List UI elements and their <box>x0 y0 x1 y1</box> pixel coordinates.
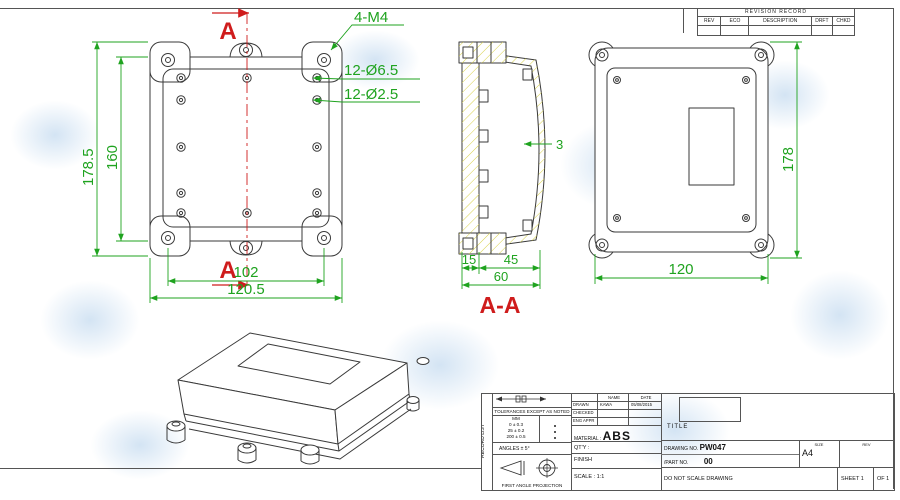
checked-label: CHECKED <box>571 409 598 417</box>
bottom-row: DO NOT SCALE DRAWING SHEET 1 OF 1 <box>661 468 894 490</box>
qty-row: QT'Y : <box>571 442 661 454</box>
section-marker-top: A <box>219 18 236 45</box>
revision-table: REVISION RECORD REV ECO DESCRIPTION DRFT… <box>697 8 855 36</box>
revision-table-empty-row <box>698 26 854 35</box>
col-rev: REV <box>698 17 721 25</box>
material-row: MATERIAL : ABS <box>571 425 661 442</box>
dim-120: 120 <box>668 261 693 278</box>
drawn-name: KAWA <box>598 401 629 409</box>
label-12-d6-5: 12-Ø6.5 <box>344 62 398 79</box>
back-view <box>589 42 774 258</box>
dim-15: 15 <box>462 252 476 267</box>
first-angle-projection-label: FIRST ANGLE PROJECTION <box>493 483 571 488</box>
rev-label: REV <box>839 441 894 448</box>
dim-120-5: 120.5 <box>227 281 265 298</box>
name-header: NAME <box>598 394 629 401</box>
dimension-arrows-icon <box>493 394 549 404</box>
angles-tolerance: ANGLES ± 5° <box>493 443 571 455</box>
size-value: A4 <box>799 448 839 458</box>
drawing-no-value: PW047 <box>700 443 726 452</box>
title-area: TITLE <box>661 394 894 441</box>
of-label: OF 1 <box>874 468 894 490</box>
front-view <box>150 42 342 256</box>
revision-table-header: REV ECO DESCRIPTION DRFT CHKD <box>698 17 854 26</box>
projection-cell: FIRST ANGLE PROJECTION <box>493 455 571 490</box>
label-4-m4: 4-M4 <box>354 9 388 26</box>
drawn-label: DRAWN <box>571 401 598 409</box>
part-no-value: 00 <box>690 457 713 466</box>
dim-160: 160 <box>104 145 121 170</box>
tol-row-3: 200 ± 0.5 <box>493 434 539 440</box>
dim-178-5: 178.5 <box>80 148 97 186</box>
drawing-no-label: DRAWING NO. <box>664 446 698 452</box>
col-chkd: CHKD <box>833 17 854 25</box>
part-no-label: /PART NO. <box>664 460 688 466</box>
col-drft: DRFT <box>812 17 833 25</box>
dim-178: 178 <box>780 147 797 172</box>
title-block: RECORD LIST TOLERANCES EXCEPT AS NOTED M… <box>481 393 895 491</box>
drawn-date: 05/08/2015 <box>629 401 661 409</box>
col-description: DESCRIPTION <box>749 17 811 25</box>
label-12-d2-5: 12-Ø2.5 <box>344 86 398 103</box>
sheet-label: SHEET 1 <box>838 468 874 490</box>
do-not-scale-label: DO NOT SCALE DRAWING <box>661 468 838 490</box>
drawing-number-area: DRAWING NO. PW047 /PART NO. 00 SIZE A4 R… <box>661 441 894 468</box>
record-list-strip: RECORD LIST <box>482 394 493 490</box>
dim-102: 102 <box>233 264 258 281</box>
rev-cell: REV <box>839 441 894 468</box>
tolerances-title: TOLERANCES EXCEPT AS NOTED <box>493 408 571 416</box>
logo-box <box>679 397 741 422</box>
record-list-label: RECORD LIST <box>482 424 486 458</box>
material-value: ABS <box>603 429 631 443</box>
title-label: TITLE <box>667 424 688 430</box>
tolerance-dots <box>539 416 571 443</box>
first-angle-projection-icon <box>497 458 567 478</box>
size-cell: SIZE A4 <box>799 441 840 468</box>
section-label-a-a: A-A <box>480 292 521 318</box>
dimension-symbol-cell <box>493 394 571 408</box>
dim-45: 45 <box>504 252 518 267</box>
isometric-view <box>167 333 429 464</box>
dim-wall-3: 3 <box>556 137 563 152</box>
section-view <box>459 42 545 254</box>
date-header: DATE <box>629 394 661 401</box>
col-eco: ECO <box>721 17 749 25</box>
finish-row: FINISH <box>571 454 661 469</box>
tolerances-table: MM 0 ± 0.3 25 ± 0.2 200 ± 0.5 <box>493 416 571 443</box>
size-label: SIZE <box>799 441 839 448</box>
dim-60: 60 <box>494 269 508 284</box>
eng-appr-label: ENG APPR <box>571 417 598 425</box>
scale-row: SCALE : 1:1 <box>571 469 661 490</box>
revision-table-title: REVISION RECORD <box>698 9 854 17</box>
